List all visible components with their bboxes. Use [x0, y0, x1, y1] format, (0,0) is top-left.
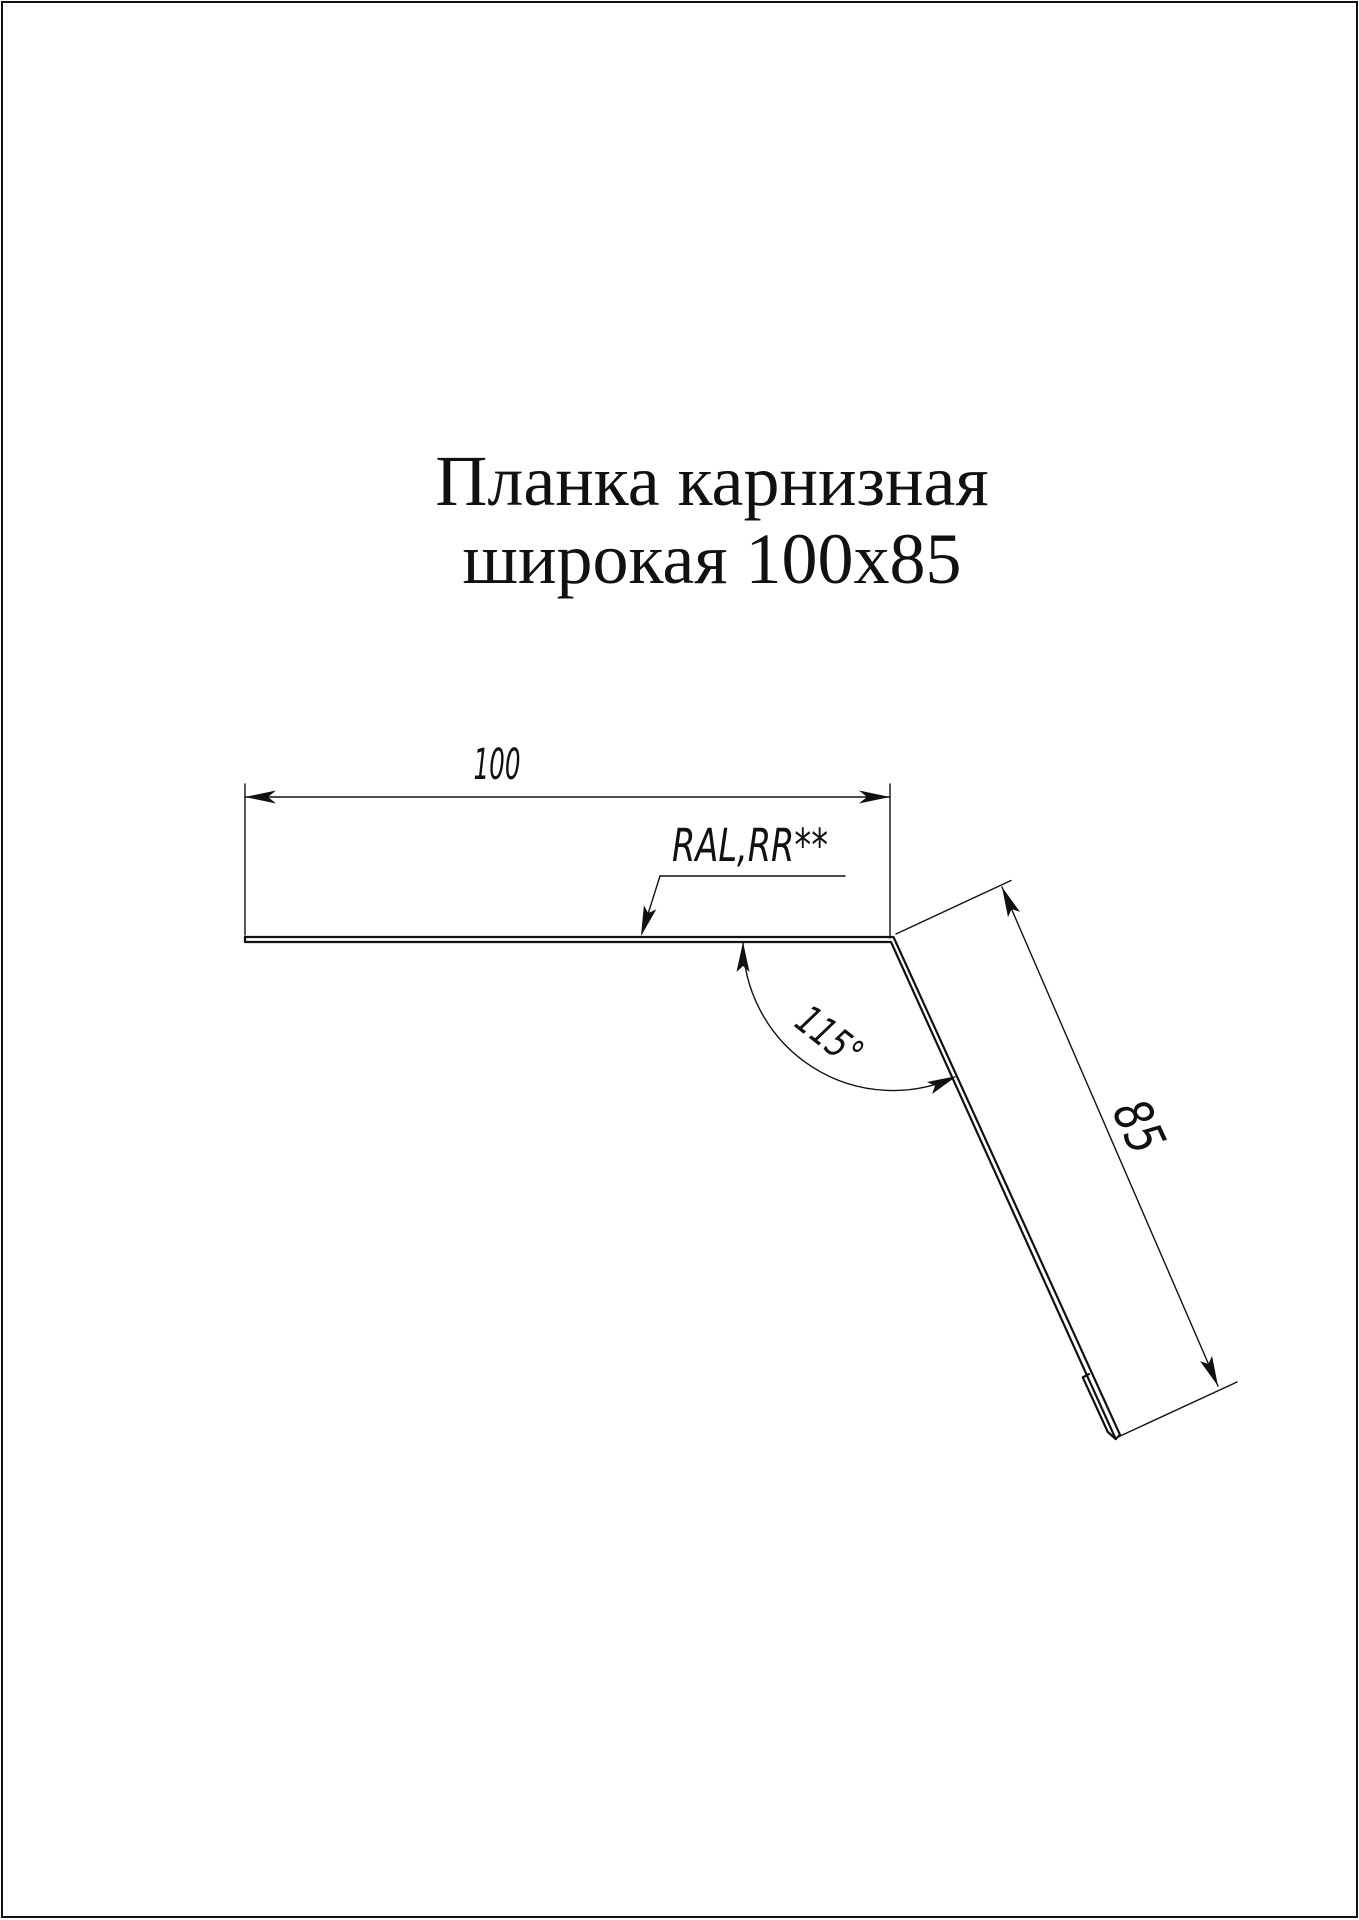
- plate-profile: [245, 937, 1120, 1439]
- length-arrow-bottom: [1200, 1356, 1218, 1386]
- width-dim-label: 100: [474, 740, 521, 790]
- angle-label: 115°: [786, 997, 871, 1078]
- length-dimension: 85: [896, 881, 1237, 1438]
- length-ext-line-top: [896, 881, 1011, 935]
- profile-drawing: 100 RAL,RR** 115° 85: [0, 0, 1359, 1920]
- plate-inner-line: [245, 942, 1116, 1439]
- length-dim-label: 85: [1100, 1091, 1176, 1163]
- length-ext-line-bottom: [1118, 1382, 1237, 1437]
- plate-outer-line: [245, 937, 1120, 1435]
- angle-dimension: 115°: [737, 942, 958, 1094]
- angle-arrow-top: [737, 942, 750, 972]
- coating-leader-line: [642, 876, 845, 933]
- length-arrow-top: [1002, 887, 1020, 917]
- drawing-sheet: Планка карнизная широкая 100х85 100 RAL,…: [0, 0, 1359, 1920]
- coating-note-label: RAL,RR**: [672, 819, 828, 872]
- coating-leader: RAL,RR**: [641, 819, 845, 936]
